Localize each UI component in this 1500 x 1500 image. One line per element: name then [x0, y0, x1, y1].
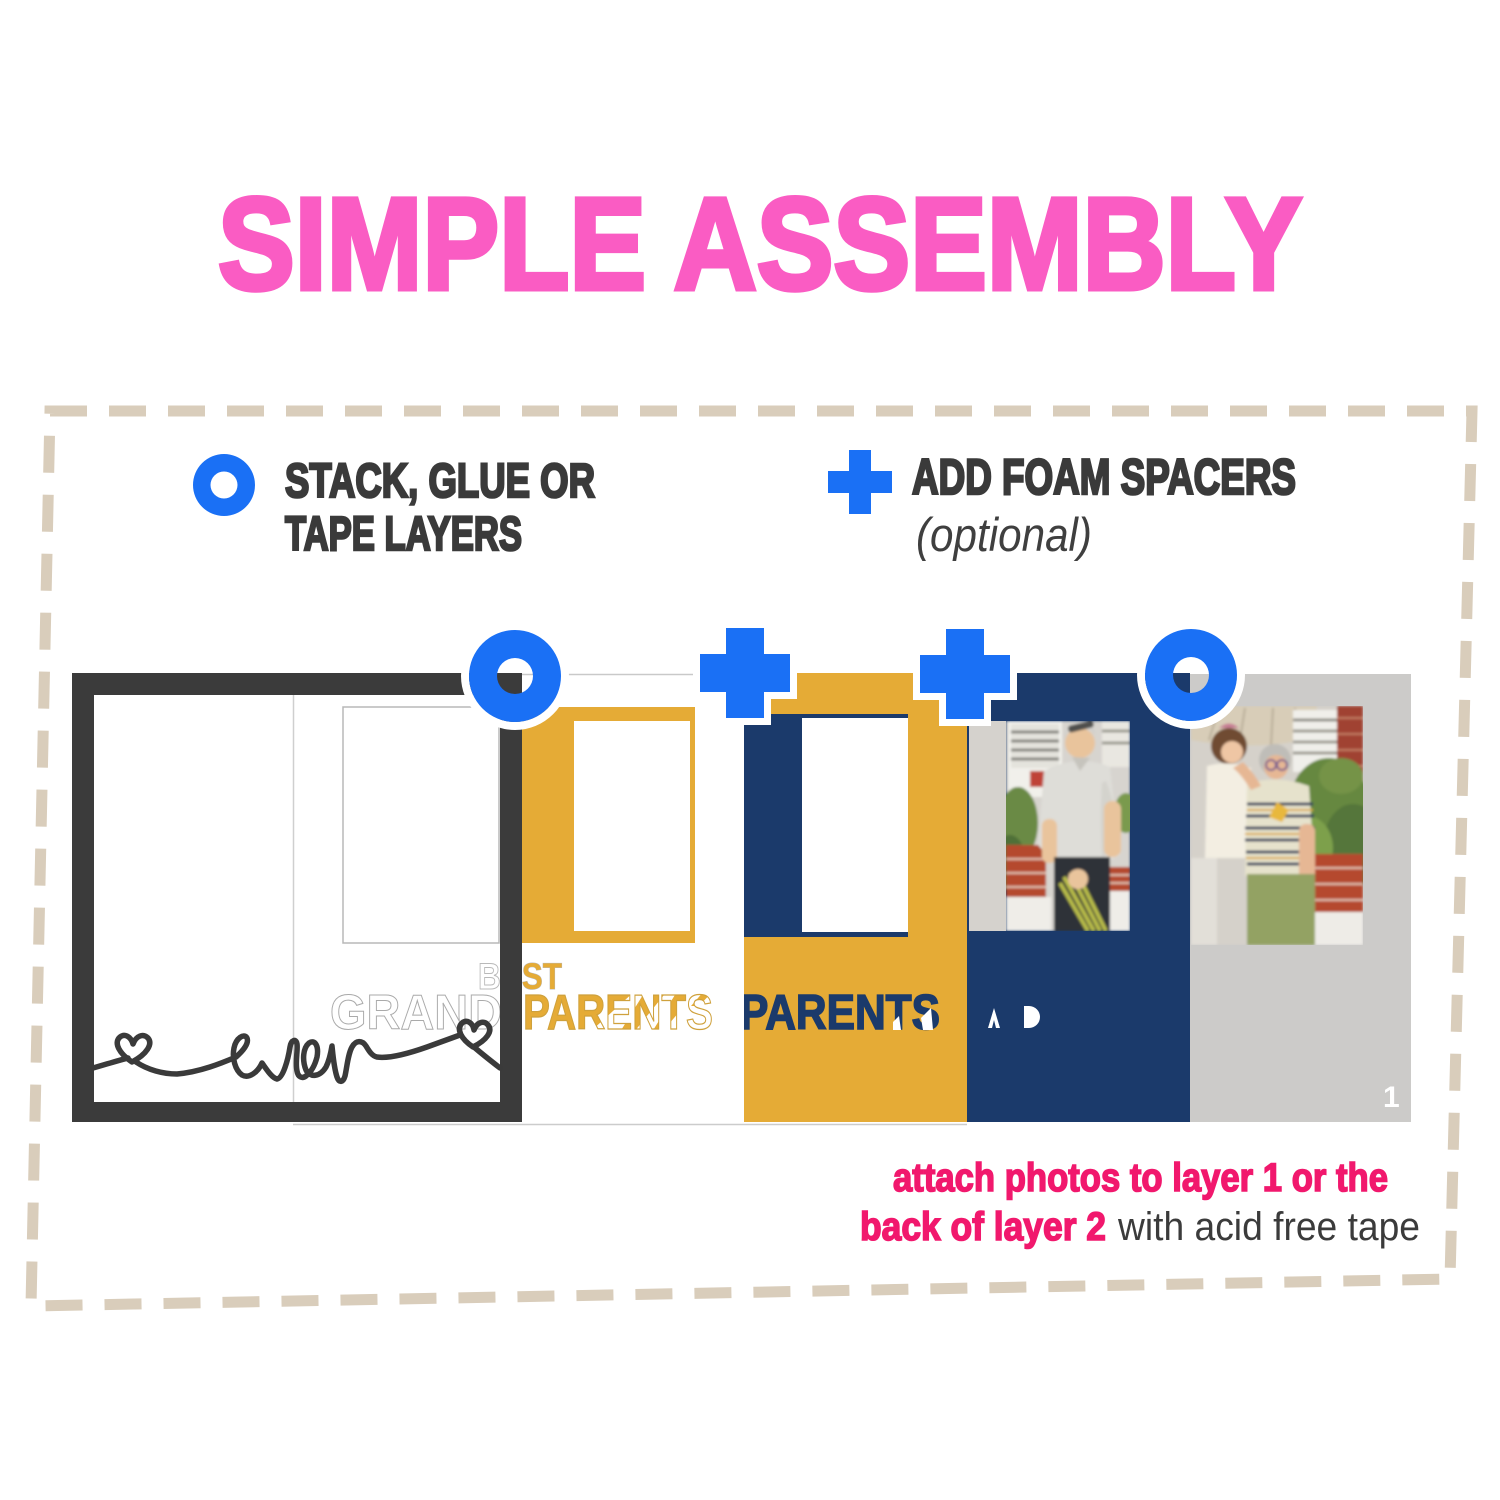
svg-text:back of layer 2: back of layer 2: [860, 1205, 1106, 1249]
svg-text:STACK, GLUE OR: STACK, GLUE OR: [285, 455, 595, 508]
svg-text:with acid free tape: with acid free tape: [1117, 1205, 1420, 1249]
svg-text:PARENTS: PARENTS: [740, 986, 940, 1040]
svg-text:(optional): (optional): [916, 508, 1092, 561]
svg-text:ADD FOAM SPACERS: ADD FOAM SPACERS: [912, 449, 1296, 505]
svg-text:1: 1: [1383, 1081, 1400, 1114]
svg-text:TAPE LAYERS: TAPE LAYERS: [285, 508, 522, 561]
svg-text:PARENTS: PARENTS: [523, 986, 713, 1040]
svg-text:SIMPLE ASSEMBLY: SIMPLE ASSEMBLY: [218, 170, 1302, 317]
svg-text:attach photos to layer 1 or th: attach photos to layer 1 or the: [893, 1156, 1388, 1200]
svg-text:GRAND: GRAND: [330, 986, 502, 1040]
